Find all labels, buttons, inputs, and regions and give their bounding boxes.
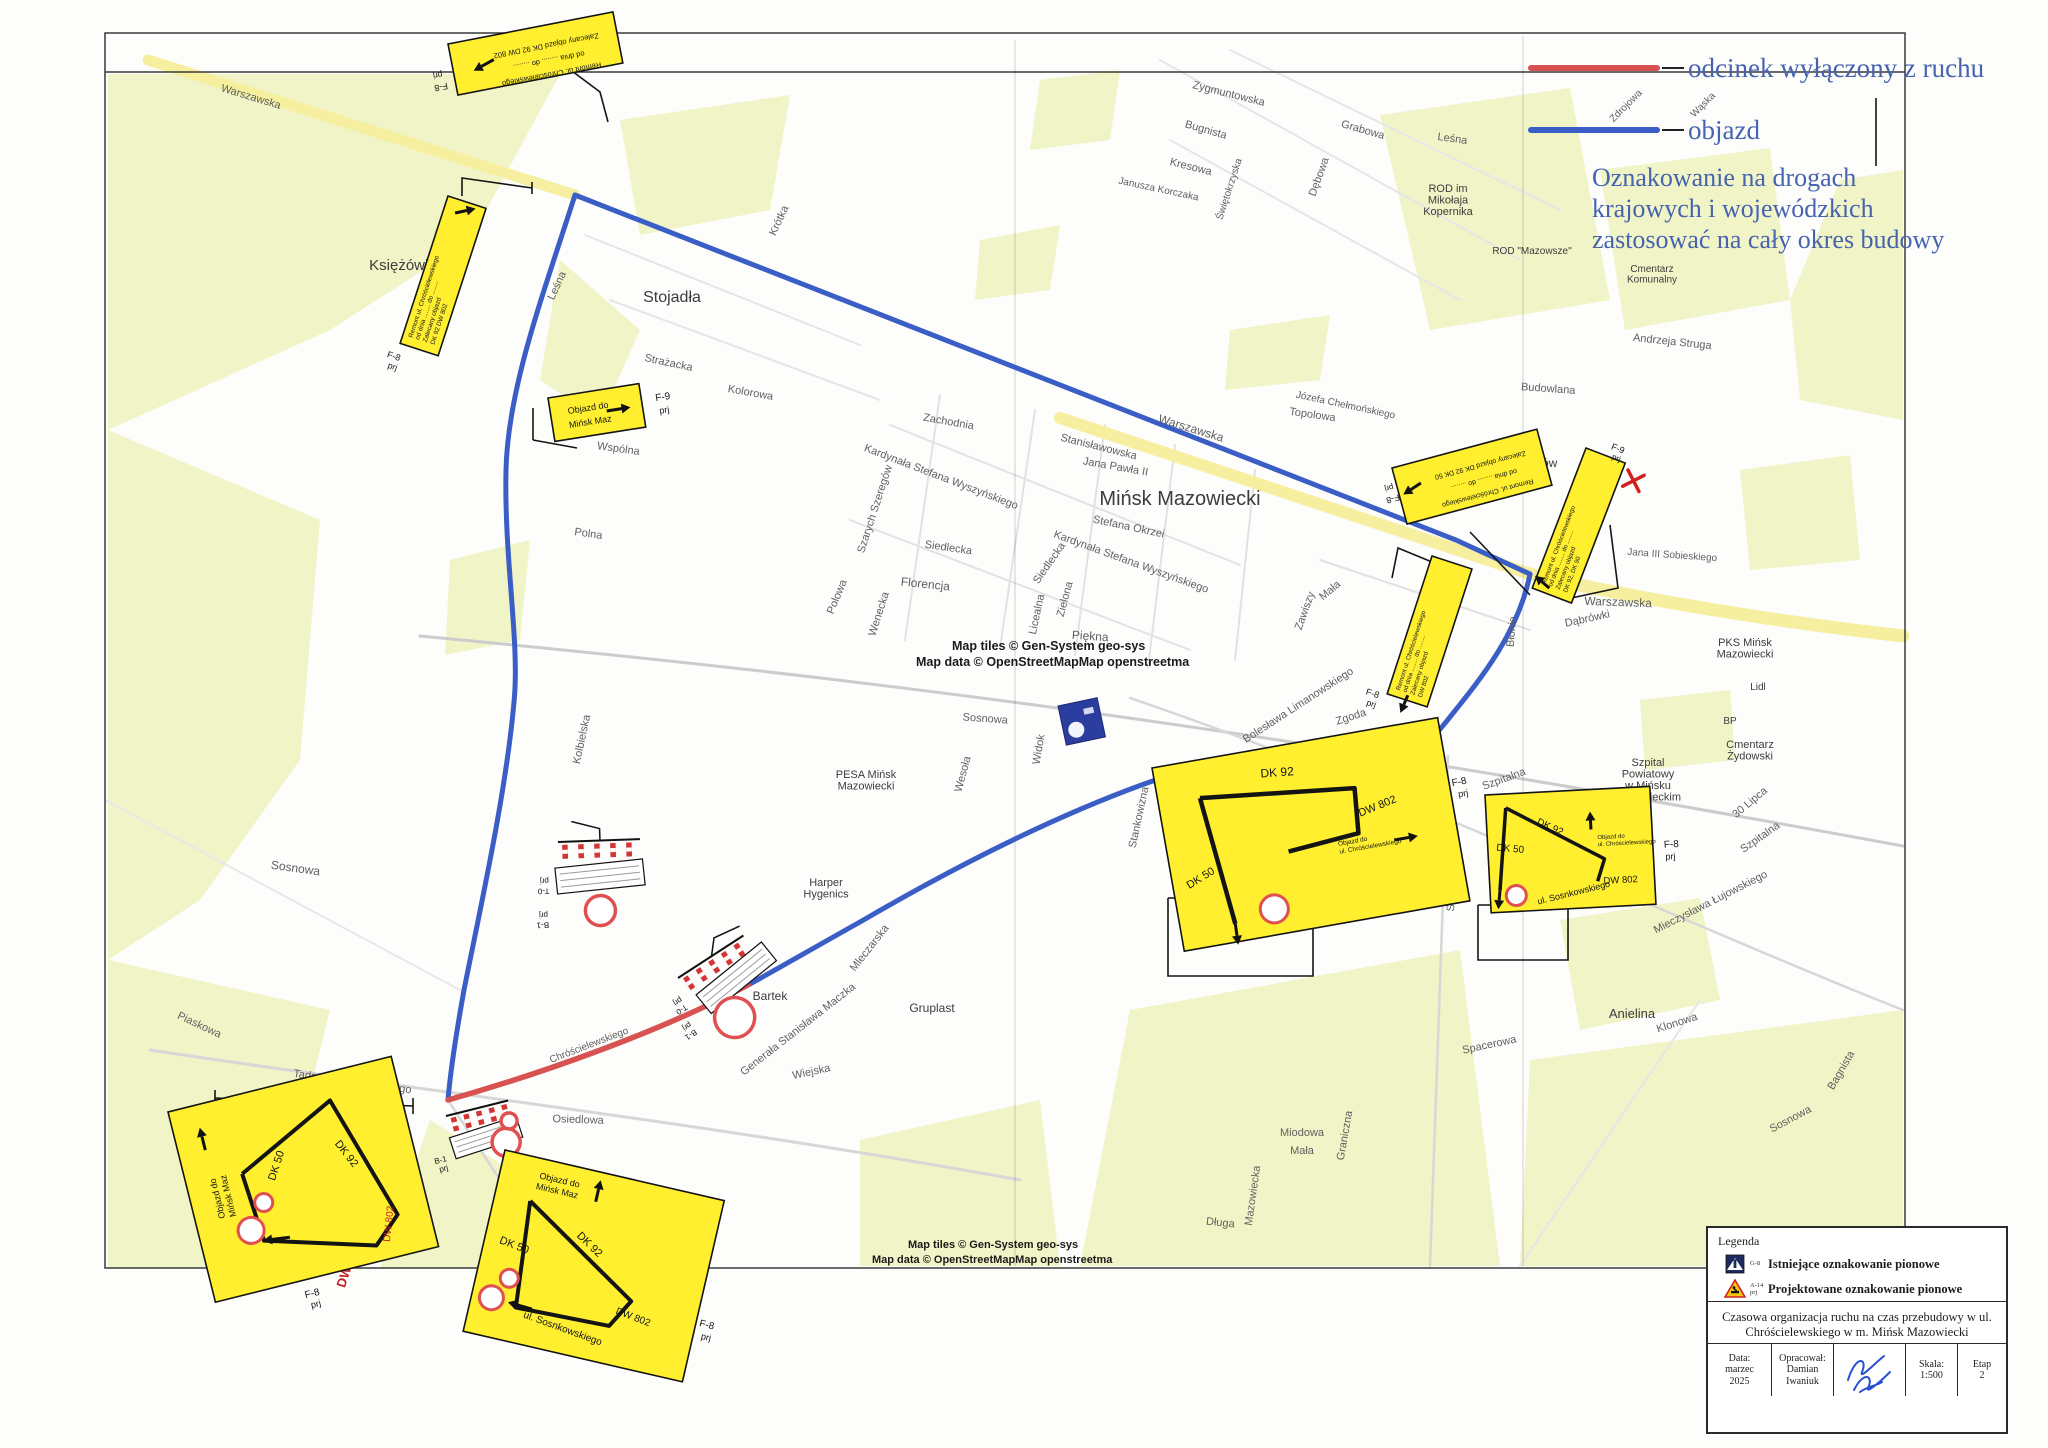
sign-text: prj: [1665, 851, 1676, 862]
stage-cell: Etap2: [1958, 1344, 2006, 1396]
crossing-sign-icon: [1724, 1254, 1746, 1274]
green-patch: [108, 74, 560, 430]
place-label: ROD "Mazowsze": [1492, 246, 1572, 257]
place-label: Mińsk Mazowiecki: [1099, 488, 1260, 510]
sign-text: F-8: [1664, 839, 1680, 851]
author-cell: Opracował:Damian Iwaniuk: [1772, 1344, 1834, 1396]
street-label: Kolbielska: [571, 713, 593, 765]
date-cell: Data:marzec 2025: [1708, 1344, 1772, 1396]
street-label: Kolorowa: [727, 383, 775, 403]
street-label: Krótka: [767, 203, 792, 238]
street-label: Jana III Sobieskiego: [1627, 547, 1718, 564]
info-board-sign-ne-w: Zalecany objazd DK 92 DK 50od dnia .....…: [1379, 429, 1552, 527]
place-label: PESA Mińsk: [836, 769, 897, 781]
legend-item-label: Projektowane oznakowanie pionowe: [1768, 1282, 1962, 1297]
legend-item-existing: G-8 Istniejące oznakowanie pionowe: [1708, 1251, 2006, 1276]
street-label: Zygmuntowska: [1191, 79, 1267, 109]
street-label: Sosnowa: [962, 711, 1009, 726]
key-row-closed: odcinek wyłączony z ruchu: [1528, 50, 2028, 86]
street-label: Kardynała Stefana Wyszyńskiego: [1052, 529, 1210, 596]
sign-text: prj: [1457, 788, 1469, 800]
road-closure: T-0prjB-1prj: [533, 819, 647, 930]
street-label: Sosnowa: [270, 858, 321, 879]
blue-info-sign: [1058, 698, 1105, 745]
map-key: odcinek wyłączony z ruchu objazd Oznakow…: [1528, 50, 2028, 174]
leader-line: [1470, 532, 1530, 595]
sign-code: G-8: [1750, 1260, 1768, 1267]
sign-text: prj: [659, 404, 670, 415]
street-label: Topolowa: [1289, 406, 1338, 424]
road: [1000, 410, 1035, 648]
closure-sign-code: T-0: [537, 886, 549, 895]
place-label: Mazowiecki: [838, 781, 895, 793]
legend-title: Legenda: [1708, 1228, 2006, 1251]
street-label: Bolesława Limanowskiego: [1241, 665, 1356, 745]
place-label: Anielina: [1609, 1006, 1656, 1021]
attribution-text: Map tiles © Gen-System geo-sys: [952, 639, 1145, 653]
note-line: Oznakowanie na drogach: [1592, 162, 2022, 193]
street-label: Zachodnia: [922, 412, 976, 433]
closure-x-mark: [1623, 470, 1644, 491]
attribution-text: Map tiles © Gen-System geo-sys: [908, 1239, 1078, 1251]
detour-route-label: objazd: [1688, 115, 1760, 146]
street-label: Licealna: [1027, 592, 1047, 635]
title-block: Legenda G-8 Istniejące oznakowanie piono…: [1706, 1226, 2008, 1434]
street-label: Siedlecka: [1031, 540, 1069, 587]
detour-diagram-sign-center: DK 92DW 802DK 50Objazd doul. Chróścielew…: [1152, 715, 1488, 955]
sign-text: F-8: [698, 1318, 716, 1332]
detour-diagram-sign-s: Objazd doMińsk MazDK 92DK 50DW 802ul. So…: [463, 1150, 743, 1386]
detour-diagram-sign-e: DK 92DW 802DK 50ul. SosnkowskiegoObjazd …: [1485, 785, 1682, 913]
place-label: Lidl: [1750, 682, 1766, 693]
scale-cell: Skala:1:500: [1906, 1344, 1958, 1396]
drawing-title: Czasowa organizacja ruchu na czas przebu…: [1708, 1301, 2006, 1343]
street-label: Widok: [1030, 733, 1047, 766]
roadworks-sign-icon: [1724, 1279, 1746, 1299]
attribution-text: Map data © OpenStreetMapMap openstreetma: [872, 1254, 1113, 1266]
street-label: Mała: [1317, 578, 1344, 603]
place-label: Mikołaja: [1428, 195, 1469, 207]
street-label: Wenecka: [866, 590, 892, 638]
green-patch: [445, 540, 530, 655]
roundabout-symbol: [1506, 885, 1527, 906]
street-label: Polna: [574, 526, 604, 542]
street-label: Mała: [1290, 1145, 1315, 1157]
key-leader-line: [1662, 129, 1684, 131]
sign-text: prj: [310, 1298, 322, 1310]
place-label: Cmentarz: [1630, 264, 1673, 275]
sign-text: F-9: [655, 391, 672, 404]
place-label: Bartek: [753, 989, 789, 1003]
place-label: Stojadła: [643, 289, 701, 306]
place-label: Hygenics: [803, 889, 849, 901]
street-label: Budowlana: [1521, 381, 1577, 397]
sign-text: prj: [1383, 482, 1394, 493]
street-label: Mieczysława Łujowskiego: [1652, 868, 1770, 936]
street-label: Szarych Szeregów: [855, 464, 895, 555]
street-label: Strażacka: [643, 352, 694, 374]
street-label: Dębowa: [1307, 155, 1332, 198]
street-label: Bugnista: [1184, 118, 1229, 142]
sign-text: prj: [1365, 697, 1377, 709]
green-patch: [1030, 70, 1120, 150]
sign-code: A-14 prj: [1750, 1282, 1768, 1296]
info-board-sign-junction-s: Remont ul. Chróścielewskiegood dnia ....…: [1362, 550, 1472, 725]
place-label: Gruplast: [909, 1001, 955, 1015]
street-label: Wiejska: [791, 1062, 832, 1082]
street-label: Siedlecka: [924, 539, 974, 558]
no-entry-sign: [499, 1111, 518, 1130]
green-patch: [1225, 315, 1330, 390]
street-label: Osiedlowa: [552, 1113, 605, 1127]
signature: [1840, 1346, 1900, 1394]
street-label: Dąbrówki: [1564, 608, 1611, 629]
street-label: Zawiszy: [1293, 590, 1318, 632]
closure-sign-code: prj: [540, 876, 549, 885]
street-label: Błonie: [1505, 616, 1520, 648]
closure-details: T-0prjB-1prjT-0prjB-1prjB-1prj: [424, 819, 801, 1175]
legend-item-projected: A-14 prj Projektowane oznakowanie pionow…: [1708, 1276, 2006, 1301]
street-label: Polowa: [825, 577, 850, 616]
place-label: Kopernika: [1423, 206, 1473, 218]
traffic-plan-page: WarszawskaWarszawskaWarszawskaLeśnaKrótk…: [0, 0, 2048, 1448]
road: [905, 395, 940, 640]
street-label: Szpitalna: [1481, 766, 1528, 793]
note-line: krajowych i wojewódzkich: [1592, 193, 2022, 224]
street-label: Wesoła: [953, 754, 974, 793]
title-block-cells: Data:marzec 2025 Opracował:Damian Iwaniu…: [1708, 1343, 2006, 1396]
sign-text: prj: [387, 360, 399, 372]
place-label: Harper: [809, 877, 843, 889]
place-label: ROD im: [1428, 183, 1467, 195]
sign-text: F-8: [1385, 492, 1401, 505]
street-label: Janusza Korczaka: [1117, 176, 1200, 204]
place-label: Powiatowy: [1622, 769, 1675, 781]
street-label: 30 Lipca: [1730, 784, 1770, 820]
place-label: Mazowiecki: [1717, 649, 1774, 661]
closure-sign-code: B-1: [536, 920, 549, 929]
closed-route-label: odcinek wyłączony z ruchu: [1688, 53, 1984, 84]
closed-route-swatch: [1528, 65, 1660, 71]
green-patch: [1740, 455, 1860, 570]
signage-note: Oznakowanie na drogach krajowych i wojew…: [1592, 162, 2022, 256]
closure-sign-code: prj: [539, 910, 548, 919]
place-label: PKS Mińsk: [1718, 637, 1772, 649]
street-label: Szpitalna: [1738, 819, 1783, 855]
place-label: Szpital: [1631, 757, 1664, 769]
place-label: Komunalny: [1627, 275, 1677, 286]
place-label: Cmentarz: [1726, 739, 1774, 751]
street-label: Stefana Okrzei: [1092, 514, 1166, 541]
place-label: BP: [1723, 716, 1737, 727]
sign-text: prj: [700, 1331, 712, 1343]
street-label: Jana Pawła II: [1082, 455, 1149, 478]
sign-text: DK 92: [1260, 764, 1295, 780]
street-label: Florencja: [900, 574, 951, 593]
note-line: zastosować na cały okres budowy: [1592, 224, 2022, 255]
street-label: Miodowa: [1280, 1127, 1325, 1139]
place-label: Żydowski: [1727, 750, 1773, 763]
green-patch: [620, 95, 790, 235]
street-label: Zgoda: [1334, 706, 1368, 727]
attribution-text: Map data © OpenStreetMapMap openstreetma: [916, 655, 1190, 669]
street-label: Stankowizna: [1127, 785, 1152, 849]
no-entry-sign: [585, 895, 616, 926]
legend-item-label: Istniejące oznakowanie pionowe: [1768, 1257, 1940, 1272]
detour-route-swatch: [1528, 127, 1660, 133]
green-patch: [108, 430, 320, 960]
green-patch: [975, 225, 1060, 300]
street-label: Andrzeja Struga: [1632, 332, 1713, 352]
key-leader-line: [1662, 67, 1684, 69]
key-row-detour: objazd: [1528, 112, 2028, 148]
street-label: Warszawska: [1584, 594, 1652, 610]
sign-text: prj: [432, 70, 443, 82]
street-label: Mleczarska: [848, 922, 892, 974]
signature-cell: [1834, 1344, 1906, 1396]
green-patch: [1080, 950, 1500, 1266]
road: [1148, 445, 1175, 668]
street-label: Wspólna: [596, 440, 641, 458]
